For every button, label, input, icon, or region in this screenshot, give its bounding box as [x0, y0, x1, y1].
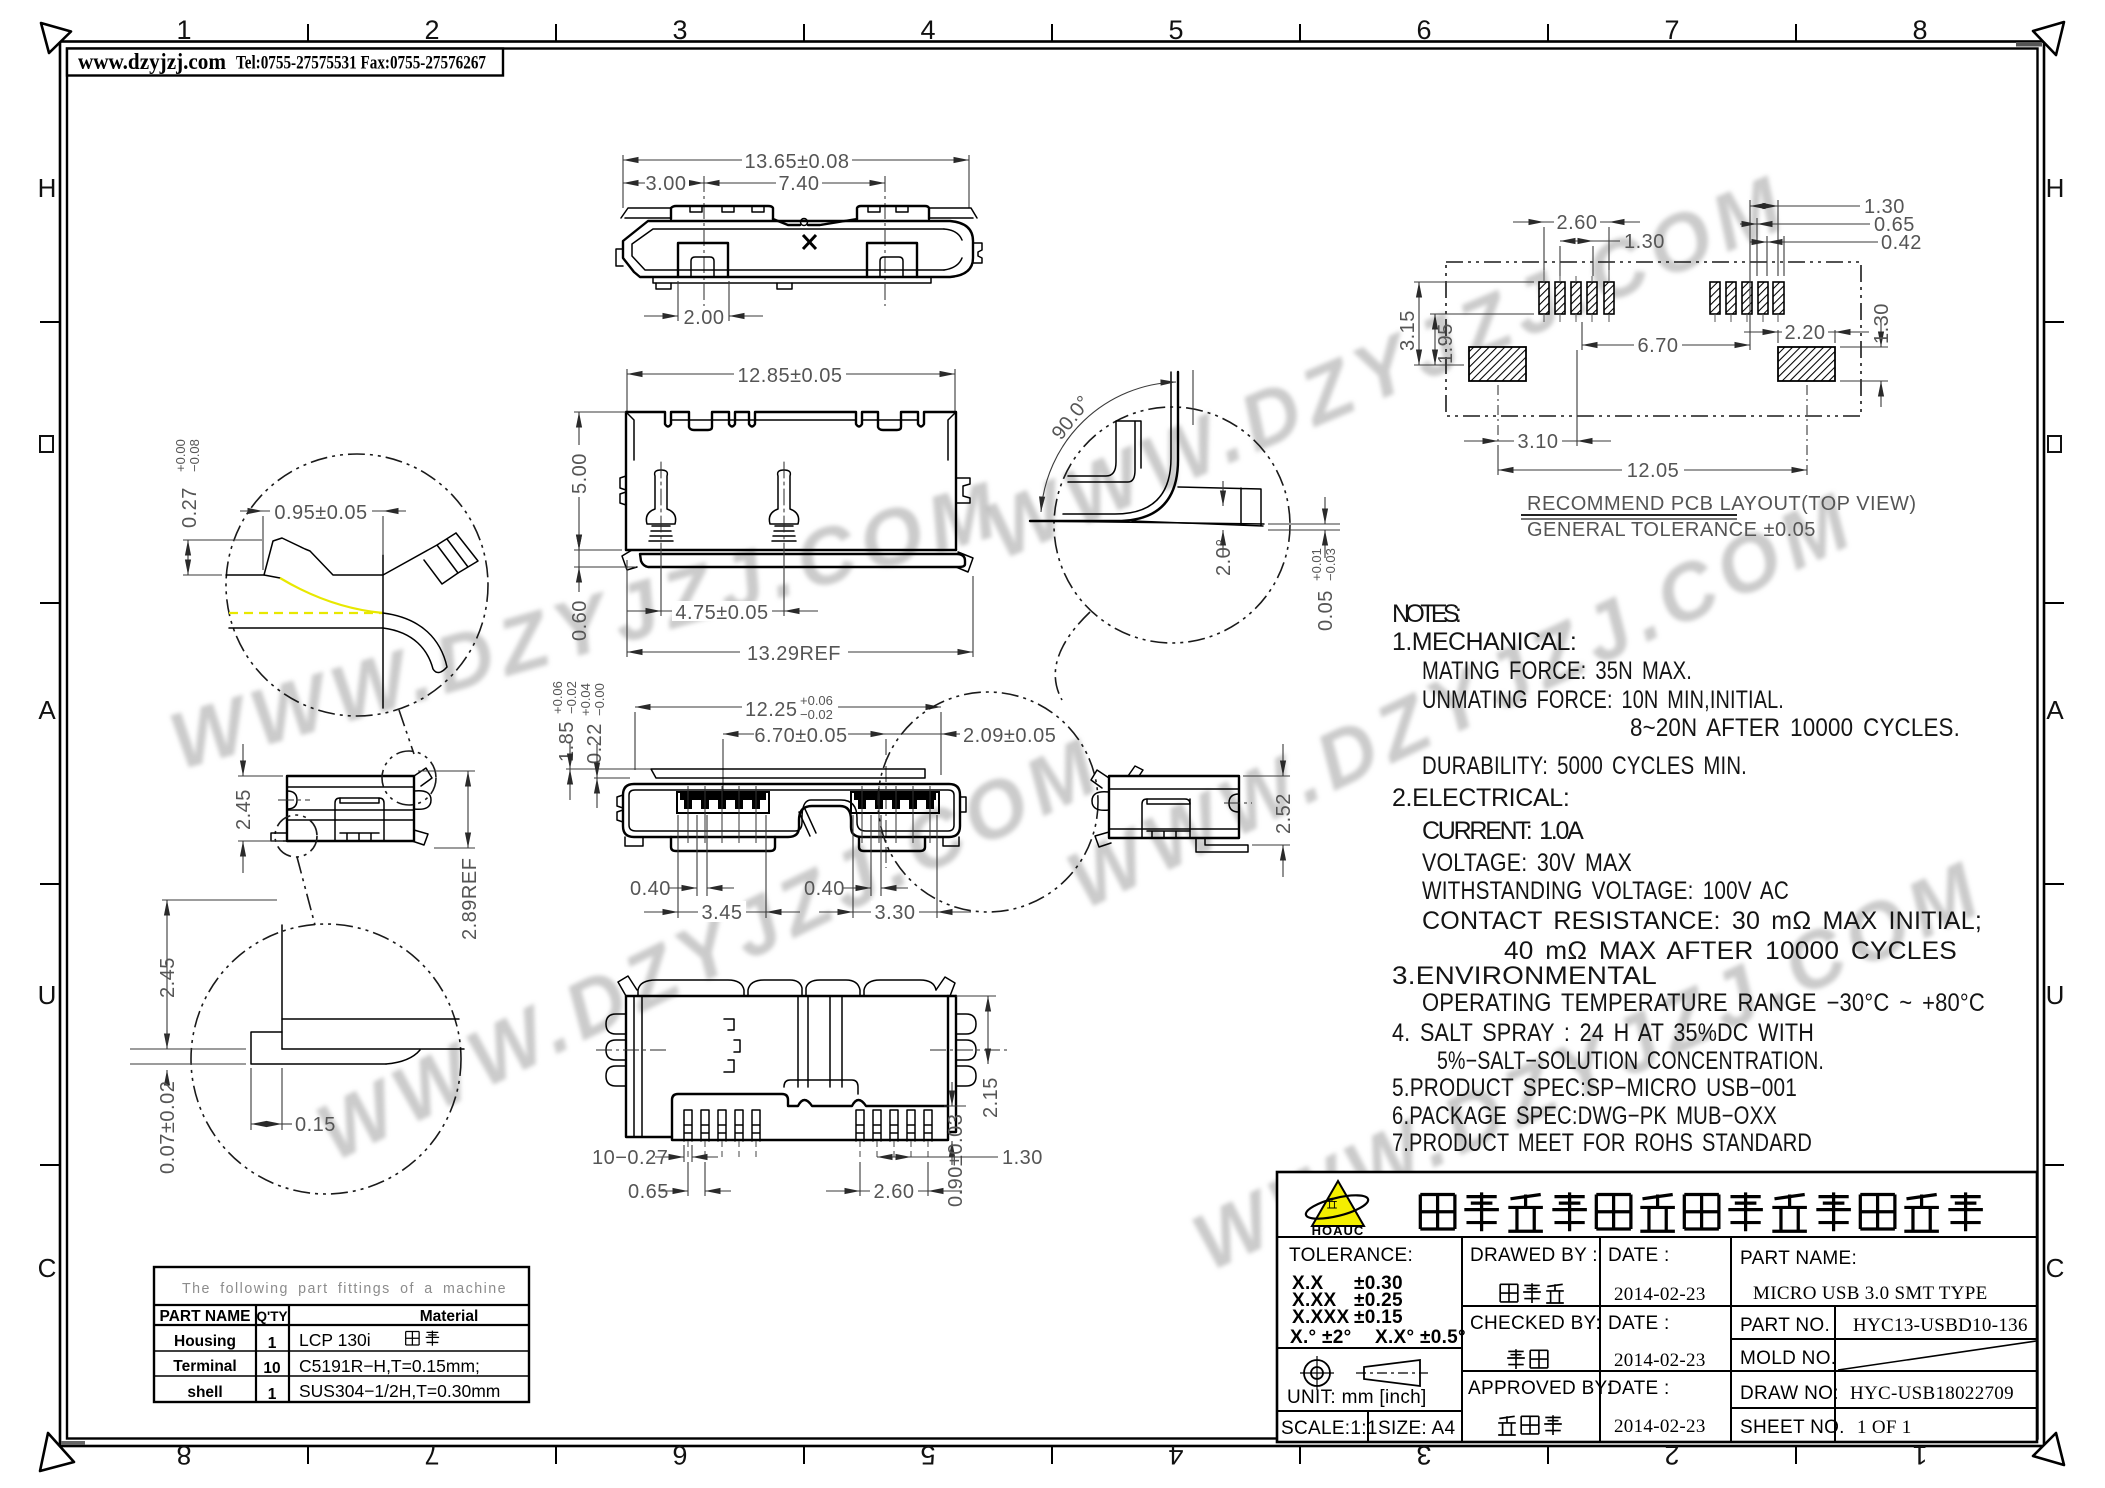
svg-text:10: 10 [263, 1360, 280, 1377]
svg-text:2.89REF: 2.89REF [459, 858, 481, 940]
svg-text:3: 3 [672, 15, 687, 45]
svg-text:PART NO.: PART NO. [1740, 1315, 1830, 1336]
svg-text:7: 7 [424, 1440, 439, 1470]
svg-text:CONTACT RESISTANCE: 30 mΩ MAX: CONTACT RESISTANCE: 30 mΩ MAX INITIAL; [1422, 907, 1982, 935]
svg-text:CURRENT: 1.0A: CURRENT: 1.0A [1422, 817, 1584, 845]
svg-text:1: 1 [268, 1386, 277, 1403]
svg-text:0.22: 0.22 [584, 723, 606, 764]
svg-text:1.30: 1.30 [1871, 303, 1893, 344]
svg-text:1: 1 [1912, 1440, 1927, 1470]
svg-text:HOAUC: HOAUC [1312, 1223, 1365, 1238]
svg-text:SHEET NO.: SHEET NO. [1740, 1417, 1845, 1438]
svg-text:7.40: 7.40 [779, 173, 820, 195]
svg-text:−0.00: −0.00 [592, 683, 607, 716]
svg-text:3: 3 [1416, 1440, 1431, 1470]
svg-text:DURABILITY: 5000 CYCLES MIN.: DURABILITY: 5000 CYCLES MIN. [1422, 752, 1747, 780]
svg-text:−0.03: −0.03 [1323, 548, 1338, 581]
svg-text:Q'TY: Q'TY [257, 1309, 288, 1324]
svg-text:4: 4 [920, 15, 935, 45]
svg-text:C: C [2046, 1253, 2065, 1283]
svg-text:Tel:0755-27575531 Fax:0755-27: Tel:0755-27575531 Fax:0755-27576267 [236, 53, 486, 74]
svg-text:Housing: Housing [174, 1333, 236, 1350]
svg-text:1: 1 [268, 1335, 277, 1352]
svg-text:0.42: 0.42 [1881, 232, 1922, 254]
svg-text:2.60: 2.60 [874, 1181, 915, 1203]
svg-text:0.65: 0.65 [628, 1181, 669, 1203]
svg-text:1.30: 1.30 [1002, 1147, 1043, 1169]
svg-text:WITHSTANDING VOLTAGE: 100V AC: WITHSTANDING VOLTAGE: 100V AC [1422, 877, 1789, 905]
svg-text:TOLERANCE:: TOLERANCE: [1289, 1245, 1413, 1266]
svg-text:6.PACKAGE SPEC:DWG−PK MUB−OXX: 6.PACKAGE SPEC:DWG−PK MUB−OXX [1392, 1102, 1777, 1130]
svg-text:3.00: 3.00 [646, 173, 687, 195]
svg-text:GENERAL TOLERANCE ±0.05: GENERAL TOLERANCE ±0.05 [1527, 519, 1816, 541]
svg-text:VOLTAGE: 30V MAX: VOLTAGE: 30V MAX [1422, 849, 1632, 877]
svg-text:4. SALT SPRAY : 24 H AT 35%DC: 4. SALT SPRAY : 24 H AT 35%DC WITH [1392, 1019, 1814, 1047]
svg-text:PART NAME: PART NAME [160, 1308, 251, 1325]
svg-text:DATE :: DATE : [1608, 1313, 1670, 1334]
svg-text:The following part fittings of: The following part fittings of a machine [182, 1281, 507, 1297]
svg-text:3.10: 3.10 [1518, 431, 1559, 453]
svg-text:2.20: 2.20 [1785, 322, 1826, 344]
svg-text:2014-02-23: 2014-02-23 [1614, 1350, 1706, 1371]
svg-text:C5191R−H,T=0.15mm;: C5191R−H,T=0.15mm; [299, 1356, 480, 1376]
svg-text:2.60: 2.60 [1557, 212, 1598, 234]
svg-text:2.00: 2.00 [684, 307, 725, 329]
svg-text:+0.00: +0.00 [173, 439, 188, 472]
svg-text:+0.06: +0.06 [800, 693, 833, 708]
svg-text:3.ENVIRONMENTAL: 3.ENVIRONMENTAL [1392, 962, 1657, 990]
svg-text:U: U [38, 980, 57, 1010]
svg-text:RECOMMEND PCB LAYOUT(TOP VI: RECOMMEND PCB LAYOUT(TOP VIEW) [1527, 493, 1916, 515]
svg-text:4: 4 [1168, 1440, 1183, 1470]
svg-text:12.85±0.05: 12.85±0.05 [738, 365, 843, 387]
svg-text:DATE :: DATE : [1608, 1378, 1670, 1399]
svg-text:MOLD NO.: MOLD NO. [1740, 1348, 1836, 1369]
svg-text:±0.15: ±0.15 [1354, 1307, 1403, 1328]
svg-text:UNMATING FORCE: 10N MIN,INITIA: UNMATING FORCE: 10N MIN,INITIAL. [1422, 686, 1784, 714]
svg-text:2.45: 2.45 [233, 789, 255, 830]
svg-text:APPROVED BY:: APPROVED BY: [1468, 1378, 1612, 1399]
svg-text:SUS304−1/2H,T=0.30mm: SUS304−1/2H,T=0.30mm [299, 1381, 500, 1401]
svg-text:0.60: 0.60 [569, 600, 591, 641]
svg-text:12.05: 12.05 [1627, 460, 1680, 482]
svg-text:C: C [38, 1253, 57, 1283]
svg-text:−0.08: −0.08 [187, 439, 202, 472]
svg-text:HYC13-USBD10-136: HYC13-USBD10-136 [1853, 1315, 2028, 1336]
svg-text:0.15: 0.15 [295, 1114, 336, 1136]
svg-text:−0.02: −0.02 [564, 681, 579, 714]
svg-text:2014-02-23: 2014-02-23 [1614, 1284, 1706, 1305]
svg-text:CHECKED BY:: CHECKED BY: [1470, 1313, 1601, 1334]
svg-text:UNIT: mm [inch]: UNIT: mm [inch] [1287, 1387, 1427, 1408]
svg-text:1 OF 1: 1 OF 1 [1857, 1417, 1912, 1438]
svg-text:DRAW NO:: DRAW NO: [1740, 1383, 1839, 1404]
svg-text:5.PRODUCT SPEC:SP−MICRO USB−00: 5.PRODUCT SPEC:SP−MICRO USB−001 [1392, 1074, 1797, 1102]
svg-text:SCALE:1:1: SCALE:1:1 [1281, 1418, 1378, 1439]
svg-text:0.40: 0.40 [804, 878, 845, 900]
svg-text:0.90±0.03: 0.90±0.03 [945, 1114, 967, 1207]
svg-text:OPERATING TEMPERATURE RANGE −3: OPERATING TEMPERATURE RANGE −30°C ~ +80°… [1422, 989, 1985, 1017]
svg-text:6.70±0.05: 6.70±0.05 [754, 725, 847, 747]
svg-text:Terminal: Terminal [173, 1358, 236, 1375]
svg-text:0.27: 0.27 [179, 487, 201, 528]
svg-text:Material: Material [420, 1308, 479, 1325]
svg-text:8: 8 [1912, 15, 1927, 45]
svg-text:0.07±0.02: 0.07±0.02 [157, 1081, 179, 1174]
svg-text:3.45: 3.45 [702, 902, 743, 924]
svg-text:DATE :: DATE : [1608, 1245, 1670, 1266]
svg-text:2.ELECTRICAL:: 2.ELECTRICAL: [1392, 784, 1570, 812]
svg-text:X.XXX: X.XXX [1292, 1307, 1349, 1328]
svg-text:0.95±0.05: 0.95±0.05 [274, 502, 367, 524]
svg-text:LCP 130i: LCP 130i [299, 1330, 371, 1350]
svg-text:0.40: 0.40 [630, 878, 671, 900]
svg-text:X.X° ±0.5°: X.X° ±0.5° [1375, 1327, 1466, 1348]
svg-text:10−0.27: 10−0.27 [592, 1147, 668, 1169]
svg-text:MICRO USB 3.0 SMT TYPE: MICRO USB 3.0 SMT TYPE [1753, 1283, 1987, 1304]
svg-text:MATING FORCE: 35N MAX.: MATING FORCE: 35N MAX. [1422, 657, 1692, 685]
svg-text:SIZE: A4: SIZE: A4 [1378, 1418, 1456, 1439]
svg-text:2.0°: 2.0° [1213, 538, 1235, 576]
svg-text:H: H [38, 173, 57, 203]
svg-text:2.45: 2.45 [157, 957, 179, 998]
svg-text:0.05: 0.05 [1315, 590, 1337, 631]
svg-text:4.75±0.05: 4.75±0.05 [675, 602, 768, 624]
svg-text:8~20N AFTER 10000 CYCLES.: 8~20N AFTER 10000 CYCLES. [1630, 714, 1960, 742]
svg-text:40 mΩ MAX AFTER 10000 CYCLES: 40 mΩ MAX AFTER 10000 CYCLES [1504, 937, 1957, 965]
svg-text:A: A [38, 695, 56, 725]
svg-text:H: H [2046, 173, 2065, 203]
svg-text:5%−SALT−SOLUTION CONCENTRATION: 5%−SALT−SOLUTION CONCENTRATION. [1437, 1047, 1824, 1075]
svg-text:2.52: 2.52 [1273, 793, 1295, 834]
svg-text:NOTES:: NOTES: [1392, 600, 1462, 628]
svg-text:6: 6 [672, 1440, 687, 1470]
svg-text:5: 5 [920, 1440, 935, 1470]
svg-text:3.15: 3.15 [1397, 310, 1419, 351]
svg-text:1.95: 1.95 [1435, 323, 1457, 364]
svg-text:6.70: 6.70 [1638, 335, 1679, 357]
svg-text:7.PRODUCT MEET FOR ROHS STANDA: 7.PRODUCT MEET FOR ROHS STANDARD [1392, 1129, 1812, 1157]
svg-text:−0.02: −0.02 [800, 707, 833, 722]
svg-text:2014-02-23: 2014-02-23 [1614, 1416, 1706, 1437]
svg-text:+0.06: +0.06 [550, 681, 565, 714]
svg-text:1.MECHANICAL:: 1.MECHANICAL: [1392, 628, 1577, 656]
svg-text:6: 6 [1416, 15, 1431, 45]
svg-text:2.09±0.05: 2.09±0.05 [963, 725, 1056, 747]
svg-text:13.65±0.08: 13.65±0.08 [745, 151, 850, 173]
svg-text:DRAWED BY :: DRAWED BY : [1470, 1245, 1598, 1266]
svg-text:1: 1 [176, 15, 191, 45]
svg-text:+0.01: +0.01 [1309, 548, 1324, 581]
svg-text:7: 7 [1664, 15, 1679, 45]
svg-text:A: A [2046, 695, 2064, 725]
svg-text:13.29REF: 13.29REF [747, 643, 841, 665]
svg-text:2: 2 [1664, 1440, 1679, 1470]
svg-text:HYC-USB18022709: HYC-USB18022709 [1850, 1383, 2014, 1404]
svg-text:3.30: 3.30 [875, 902, 916, 924]
svg-text:8: 8 [176, 1440, 191, 1470]
svg-text:5: 5 [1168, 15, 1183, 45]
svg-text:2.15: 2.15 [980, 1077, 1002, 1118]
svg-text:PART NAME:: PART NAME: [1740, 1248, 1857, 1269]
svg-text:1.85: 1.85 [556, 721, 578, 762]
svg-text:X.° ±2°: X.° ±2° [1290, 1327, 1352, 1348]
svg-text:www.dzyjzj.com: www.dzyjzj.com [78, 49, 226, 74]
svg-text:5.00: 5.00 [569, 453, 591, 494]
svg-text:shell: shell [187, 1384, 222, 1401]
svg-text:12.25: 12.25 [745, 699, 798, 721]
svg-text:U: U [2046, 980, 2065, 1010]
svg-text:+0.04: +0.04 [578, 683, 593, 716]
svg-text:1.30: 1.30 [1624, 231, 1665, 253]
svg-text:2: 2 [424, 15, 439, 45]
